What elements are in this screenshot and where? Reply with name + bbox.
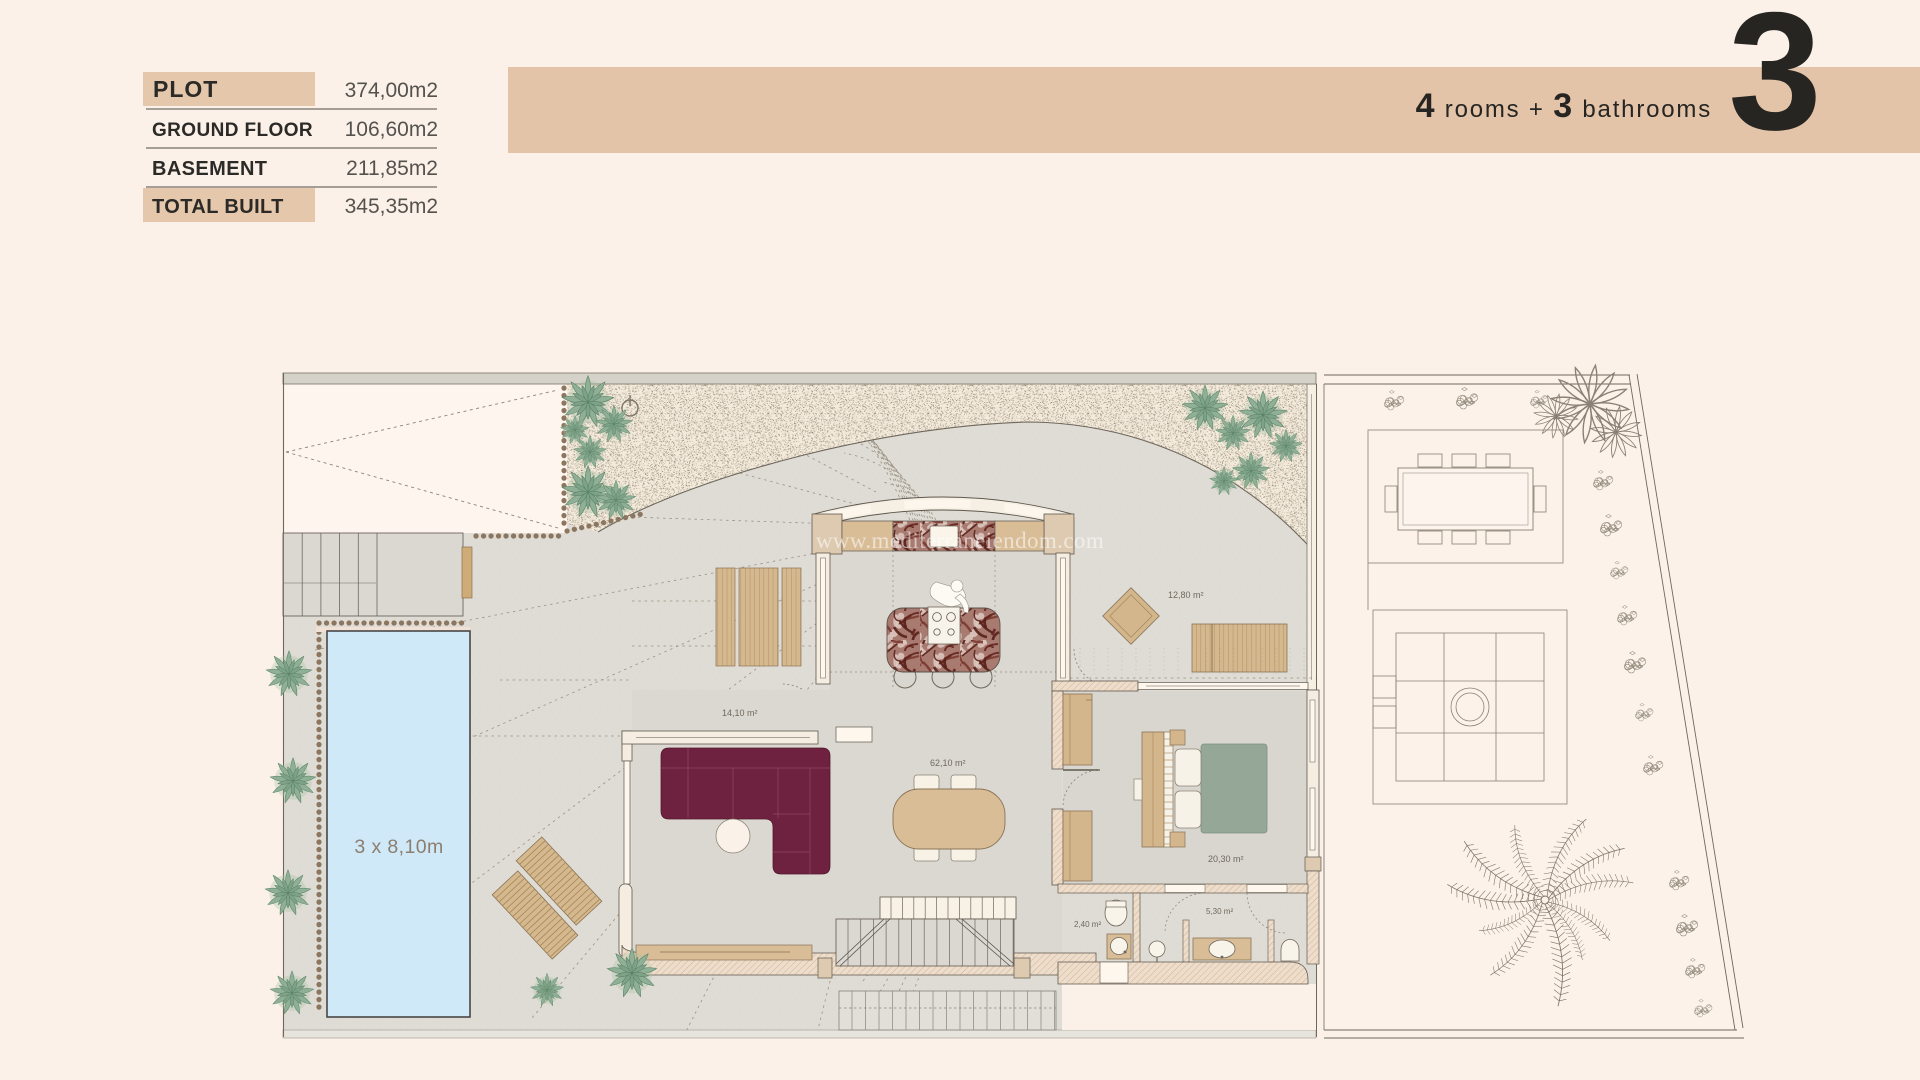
- svg-text:2,40 m²: 2,40 m²: [1074, 920, 1101, 929]
- svg-text:BASEMENT: BASEMENT: [152, 158, 267, 180]
- svg-text:14,10 m²: 14,10 m²: [722, 708, 758, 718]
- svg-text:GROUND FLOOR: GROUND FLOOR: [152, 120, 313, 141]
- svg-text:TOTAL BUILT: TOTAL BUILT: [152, 196, 284, 218]
- svg-text:5,30 m²: 5,30 m²: [1206, 907, 1233, 916]
- svg-text:211,85m2: 211,85m2: [346, 157, 438, 180]
- svg-text:12,80 m²: 12,80 m²: [1168, 590, 1204, 600]
- svg-text:20,30 m²: 20,30 m²: [1208, 854, 1244, 864]
- svg-text:374,00m2: 374,00m2: [345, 79, 438, 102]
- svg-text:3 x 8,10m: 3 x 8,10m: [354, 836, 443, 858]
- svg-text:PLOT: PLOT: [153, 76, 218, 102]
- svg-text:345,35m2: 345,35m2: [345, 195, 438, 218]
- svg-text:62,10 m²: 62,10 m²: [930, 758, 966, 768]
- svg-text:106,60m2: 106,60m2: [345, 118, 438, 141]
- svg-text:3: 3: [1728, 0, 1821, 165]
- svg-text:www.mediterraneiendom.com: www.mediterraneiendom.com: [816, 528, 1104, 553]
